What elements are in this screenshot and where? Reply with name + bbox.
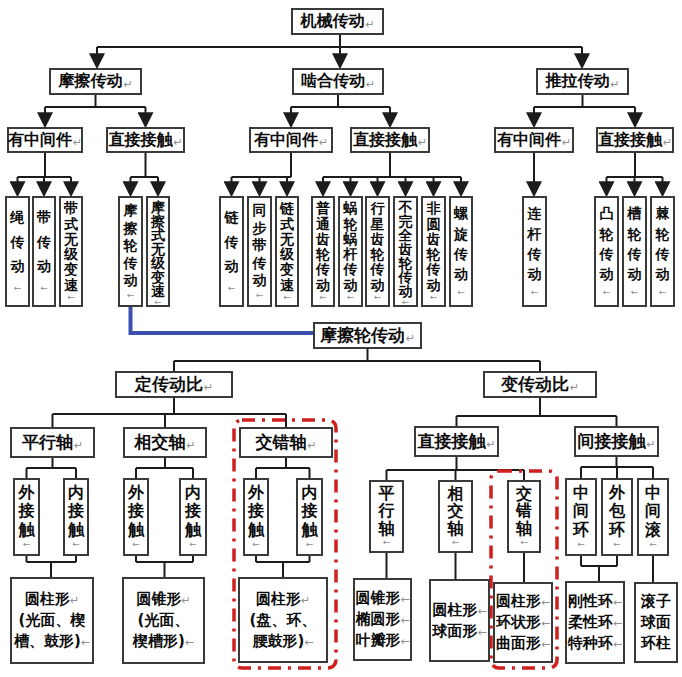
return-mark-icon: ← xyxy=(252,540,260,549)
node-variable-ratio: 变传动比↵ xyxy=(483,371,597,398)
return-mark-icon: ← xyxy=(72,540,80,549)
return-mark-icon: ← xyxy=(228,284,236,293)
return-mark-icon: ↵ xyxy=(70,594,79,607)
node-label: 球面 xyxy=(641,613,671,631)
node-internal-contact-2: 内接触← xyxy=(179,478,207,556)
node-intersecting-shaft-variable: 相交轴← xyxy=(438,480,473,553)
node-label: 啮合传动 xyxy=(301,71,365,92)
return-mark-icon: ← xyxy=(603,288,611,297)
node-label: 球面形 xyxy=(432,622,477,640)
return-mark-icon: ← xyxy=(127,291,135,300)
node-label: (光面、 xyxy=(138,611,190,629)
node-belt-cvt: 带式无级变速← xyxy=(59,196,83,307)
return-mark-icon: ← xyxy=(400,635,409,648)
return-mark-icon: ← xyxy=(520,538,528,547)
return-mark-icon: ← xyxy=(185,636,194,649)
node-label: 圆柱形 xyxy=(432,601,477,619)
return-mark-icon: ← xyxy=(81,636,90,649)
node-conical-elliptical-lobed: 圆锥形← 椭圆形← 叶瓣形← xyxy=(353,578,412,661)
node-chain-cvt: 链式无级变速← xyxy=(275,196,299,307)
flowchart-canvas: 机械传动↵ 摩擦传动↵ 啮合传动↵ 推拉传动↵ 有中间件↵ 直接接触↵ 有中间件… xyxy=(0,0,682,677)
return-mark-icon: ← xyxy=(541,596,550,609)
return-mark-icon: ← xyxy=(283,293,291,302)
return-mark-icon: ← xyxy=(457,288,465,297)
node-label: (光面、楔 xyxy=(19,611,86,629)
return-mark-icon: ← xyxy=(577,540,585,549)
node-label: 机械传动 xyxy=(300,11,364,32)
return-mark-icon: ↵ xyxy=(646,438,655,451)
node-label: 圆柱形 xyxy=(496,592,541,610)
return-mark-icon: ← xyxy=(477,626,486,639)
node-outer-ring: 外包环← xyxy=(601,478,633,556)
node-external-contact-3: 外接触← xyxy=(243,478,269,556)
node-middle-roller: 中间滚← xyxy=(637,478,669,556)
return-mark-icon: ← xyxy=(541,617,550,630)
node-direct-contact-mesh: 直接接触↵ xyxy=(350,127,430,153)
return-mark-icon: ← xyxy=(400,593,409,606)
node-conical-smooth-wedge: 圆锥形↵ (光面、 楔槽形)← xyxy=(122,577,205,664)
tree1-lines xyxy=(18,47,663,177)
node-label: 特种环 xyxy=(568,634,613,652)
node-indirect-contact: 间接接触↵ xyxy=(574,426,659,457)
node-push-pull-drive: 推拉传动↵ xyxy=(536,68,629,95)
node-label: 交错轴 xyxy=(255,431,306,454)
node-label: 槽、鼓形) xyxy=(14,632,81,650)
return-mark-icon: ← xyxy=(430,293,438,302)
return-mark-icon: ← xyxy=(14,284,22,293)
return-mark-icon: ← xyxy=(132,540,140,549)
node-noncircular-gear-drive: 非圆齿轮传动← xyxy=(421,196,446,307)
node-friction-wheel-drive: 摩擦轮传动← xyxy=(118,196,143,307)
return-mark-icon: ← xyxy=(613,617,622,630)
return-mark-icon: ↵ xyxy=(406,332,415,345)
return-mark-icon: ↵ xyxy=(307,439,316,452)
node-label: 直接接触 xyxy=(353,130,417,151)
return-mark-icon: ↵ xyxy=(562,136,571,149)
return-mark-icon: ← xyxy=(613,540,621,549)
return-mark-icon: ← xyxy=(189,540,197,549)
node-label: 定传动比 xyxy=(135,373,203,396)
node-label: 有中间件 xyxy=(8,130,72,151)
return-mark-icon: ↵ xyxy=(74,439,83,452)
node-internal-contact-3: 内接触← xyxy=(296,478,323,556)
node-label: 圆锥形 xyxy=(136,590,181,608)
return-mark-icon: ↵ xyxy=(173,136,182,149)
node-linkage-drive: 连杆传动← xyxy=(522,196,547,307)
node-label: 曲面形 xyxy=(496,634,541,652)
node-worm-gear-drive: 蜗轮蜗杆传动← xyxy=(338,196,363,307)
node-crossed-shaft-variable: 交错轴← xyxy=(507,480,541,553)
node-parallel-shaft-variable: 平行轴← xyxy=(369,480,404,553)
return-mark-icon: ← xyxy=(649,540,657,549)
node-label: 直接接触 xyxy=(598,130,662,151)
node-geneva-drive: 槽轮传动← xyxy=(622,196,647,307)
node-label: 摩擦传动 xyxy=(58,71,122,92)
node-rope-drive: 绳传动← xyxy=(5,196,30,307)
node-label: 腰鼓形) xyxy=(252,632,304,650)
return-mark-icon: ← xyxy=(613,596,622,609)
node-cylindrical-ring-curved: 圆柱形← 环状形← 曲面形← xyxy=(493,582,553,663)
return-mark-icon: ← xyxy=(23,540,31,549)
node-label: 有中间件 xyxy=(497,130,561,151)
return-mark-icon: ← xyxy=(541,638,550,651)
node-label: 变传动比 xyxy=(501,373,569,396)
return-mark-icon: ← xyxy=(477,605,486,618)
node-label: 圆锥形 xyxy=(355,589,400,607)
node-direct-contact-variable: 直接接触↵ xyxy=(414,426,499,457)
node-synchronous-belt-drive: 同步带传动← xyxy=(247,196,272,307)
node-mechanical-drive: 机械传动↵ xyxy=(291,8,384,35)
node-label: 直接接触 xyxy=(108,130,172,151)
node-ratchet-drive: 棘轮传动← xyxy=(650,196,675,307)
node-label: 相交轴 xyxy=(134,431,185,454)
node-incomplete-gear-drive: 不完全齿轮传动← xyxy=(393,196,418,307)
node-with-intermediate-push-pull: 有中间件↵ xyxy=(494,127,574,153)
return-mark-icon: ← xyxy=(304,636,313,649)
node-label: 环状形 xyxy=(496,613,541,631)
node-direct-contact-push-pull: 直接接触↵ xyxy=(596,127,674,153)
node-internal-contact-1: 内接触← xyxy=(63,478,89,556)
return-mark-icon: ← xyxy=(400,614,409,627)
node-fixed-ratio: 定传动比↵ xyxy=(115,371,233,398)
node-label: 推拉传动 xyxy=(545,71,609,92)
node-label: 刚性环 xyxy=(568,592,613,610)
node-label: 平行轴 xyxy=(22,431,73,454)
node-label: 圆柱形 xyxy=(256,590,301,608)
node-parallel-shaft: 平行轴↵ xyxy=(10,427,95,458)
blue-link-line xyxy=(131,306,314,333)
return-mark-icon: ↵ xyxy=(570,381,579,394)
return-mark-icon: ↵ xyxy=(319,136,328,149)
node-label: 摩擦轮传动 xyxy=(320,324,405,347)
node-label: 间接接触 xyxy=(577,430,645,453)
node-label: 叶瓣形 xyxy=(355,631,400,649)
node-mesh-drive: 啮合传动↵ xyxy=(292,68,384,95)
return-mark-icon: ← xyxy=(154,298,162,307)
return-mark-icon: ↵ xyxy=(365,18,374,31)
node-label: 楔槽形) xyxy=(133,632,185,650)
node-direct-contact-friction: 直接接触↵ xyxy=(106,127,185,153)
node-friction-drive: 摩擦传动↵ xyxy=(49,68,142,95)
return-mark-icon: ← xyxy=(631,288,639,297)
node-cylindrical-spherical: 圆柱形← 球面形← xyxy=(429,579,490,662)
node-label: 椭圆形 xyxy=(355,610,400,628)
node-cylindrical-disc-ring-drum: 圆柱形↵ (盘、环、 腰鼓形)← xyxy=(238,577,328,663)
return-mark-icon: ← xyxy=(347,293,355,302)
node-cam-drive: 凸轮传动← xyxy=(594,196,619,307)
node-ordinary-gear-drive: 普通齿轮传动← xyxy=(311,196,335,307)
node-planetary-gear-drive: 行星齿轮传动← xyxy=(365,196,390,307)
return-mark-icon: ← xyxy=(402,298,410,307)
node-screw-drive: 螺旋传动← xyxy=(449,196,473,307)
node-with-intermediate-friction: 有中间件↵ xyxy=(7,127,83,153)
return-mark-icon: ↵ xyxy=(123,78,132,91)
node-label: 柔性环 xyxy=(568,613,613,631)
return-mark-icon: ↵ xyxy=(181,594,190,607)
return-mark-icon: ↵ xyxy=(418,136,427,149)
return-mark-icon: ← xyxy=(531,288,539,297)
node-middle-ring: 中间环← xyxy=(565,478,597,556)
node-label: 有中间件 xyxy=(254,130,318,151)
node-with-intermediate-mesh: 有中间件↵ xyxy=(249,127,333,153)
node-chain-drive: 链传动← xyxy=(219,196,244,307)
node-friction-wheel-drive-root: 摩擦轮传动↵ xyxy=(313,322,422,349)
return-mark-icon: ↵ xyxy=(610,78,619,91)
return-mark-icon: ← xyxy=(319,293,327,302)
return-mark-icon: ↵ xyxy=(366,78,375,91)
return-mark-icon: ← xyxy=(40,284,48,293)
return-mark-icon: ← xyxy=(256,291,264,300)
node-roller-sphere-ring-column: 滚子 球面 环柱 xyxy=(634,582,678,663)
return-mark-icon: ↵ xyxy=(301,594,310,607)
node-label: (盘、环、 xyxy=(250,611,317,629)
return-mark-icon: ← xyxy=(374,293,382,302)
return-mark-icon: ← xyxy=(659,288,667,297)
node-label: 滚子 xyxy=(641,592,671,610)
return-mark-icon: ↵ xyxy=(73,136,82,149)
return-mark-icon: ↵ xyxy=(663,136,672,149)
return-mark-icon: ↵ xyxy=(486,438,495,451)
node-external-contact-2: 外接触← xyxy=(123,478,149,556)
node-label: 直接接触 xyxy=(417,430,485,453)
return-mark-icon: ← xyxy=(383,538,391,547)
return-mark-icon: ← xyxy=(613,638,622,651)
node-rigid-flexible-special-ring: 刚性环← 柔性环← 特种环← xyxy=(565,581,625,664)
node-external-contact-1: 外接触← xyxy=(13,478,40,556)
return-mark-icon: ← xyxy=(67,293,75,302)
return-mark-icon: ← xyxy=(306,540,314,549)
node-friction-cvt: 摩擦式无级变速← xyxy=(146,196,170,307)
return-mark-icon: ← xyxy=(452,538,460,547)
node-label: 圆柱形 xyxy=(25,590,70,608)
return-mark-icon: ↵ xyxy=(204,381,213,394)
node-intersecting-shaft: 相交轴↵ xyxy=(123,427,207,458)
node-label: 环柱 xyxy=(641,634,671,652)
node-crossed-shaft: 交错轴↵ xyxy=(239,427,333,458)
return-mark-icon: ↵ xyxy=(186,439,195,452)
node-belt-drive: 带传动← xyxy=(32,196,56,307)
node-cylindrical-smooth-wedge-drum: 圆柱形↵ (光面、楔 槽、鼓形)← xyxy=(10,577,94,664)
